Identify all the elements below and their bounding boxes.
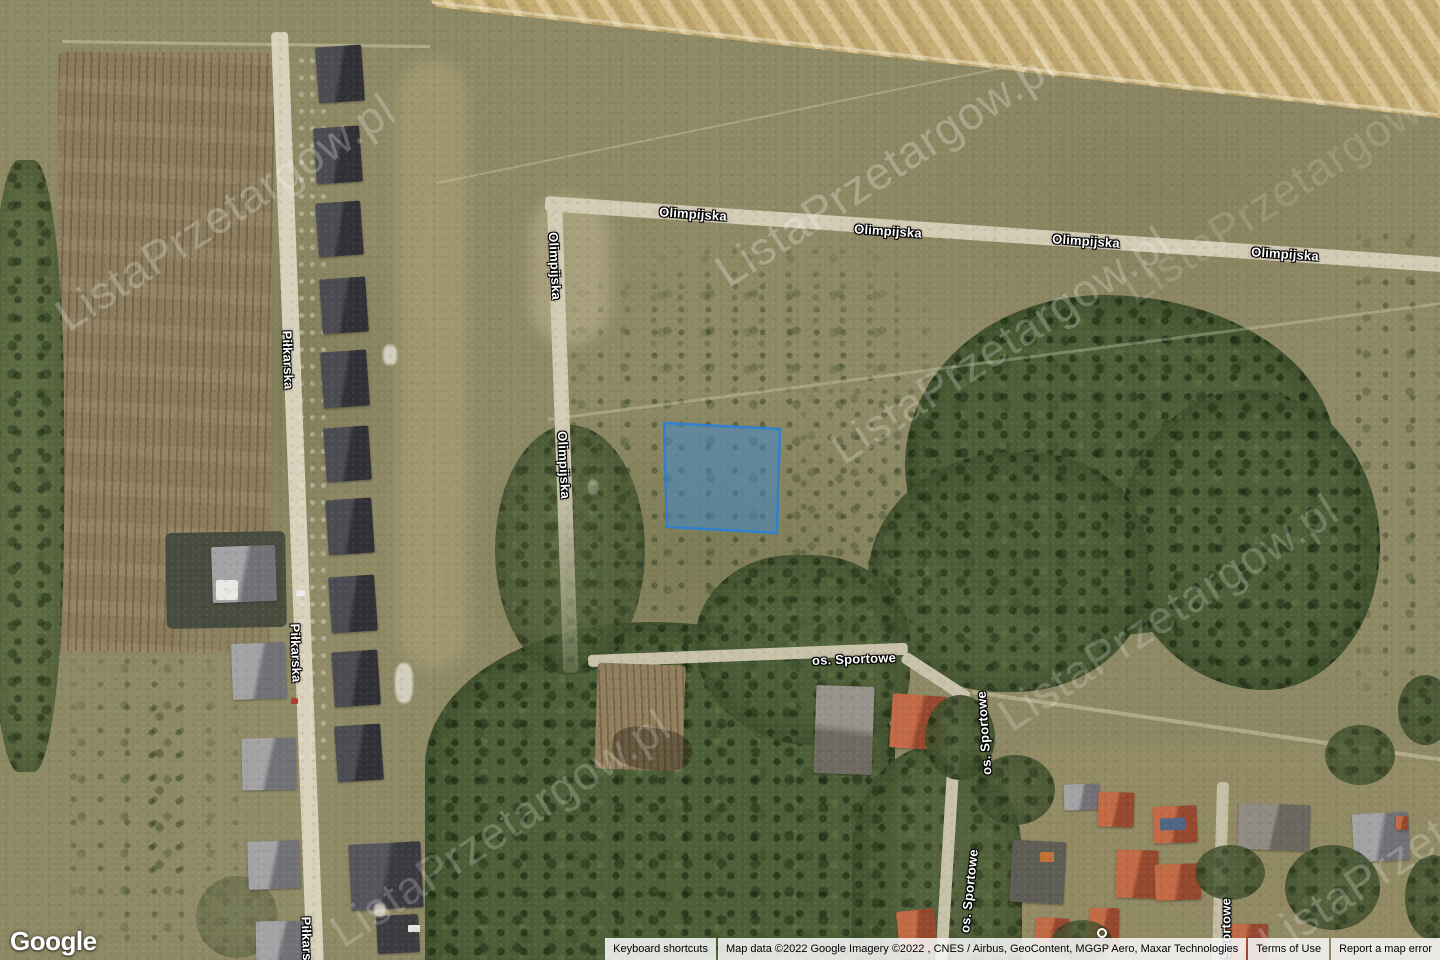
house-roof bbox=[1396, 816, 1408, 830]
field-track bbox=[62, 40, 430, 48]
house-under-construction bbox=[348, 841, 423, 911]
house-roof bbox=[231, 642, 287, 700]
house-roof bbox=[247, 840, 301, 890]
sand-band bbox=[398, 60, 468, 670]
roof-detail-orange bbox=[1040, 852, 1054, 862]
car bbox=[296, 590, 305, 596]
watermark: ListaPrzetargow.pl bbox=[705, 38, 1065, 298]
house-roof bbox=[242, 738, 297, 791]
house-roof bbox=[320, 349, 370, 408]
debris-pile bbox=[588, 480, 598, 494]
house-roof bbox=[1097, 791, 1134, 827]
house-roof bbox=[1115, 849, 1159, 898]
house-roof bbox=[313, 125, 363, 184]
car bbox=[408, 925, 420, 932]
house-roof bbox=[334, 723, 384, 782]
house-roof bbox=[319, 276, 369, 334]
shed-roof bbox=[376, 914, 420, 954]
attribution-bar: Keyboard shortcuts Map data ©2022 Google… bbox=[603, 938, 1440, 960]
green-strip-left bbox=[0, 160, 64, 772]
tree-cluster bbox=[1195, 845, 1265, 900]
road-olimpijska-horizontal bbox=[544, 196, 1440, 272]
garage-white bbox=[216, 580, 238, 600]
google-logo[interactable]: Google bbox=[10, 926, 97, 957]
keyboard-shortcuts-button[interactable]: Keyboard shortcuts bbox=[605, 938, 716, 960]
solar-panels bbox=[1160, 818, 1186, 831]
field-track bbox=[437, 62, 1025, 184]
tree-cluster bbox=[1325, 725, 1395, 785]
poi-marker[interactable] bbox=[1097, 928, 1107, 938]
car bbox=[291, 698, 298, 704]
map-data-attribution: Map data ©2022 Google Imagery ©2022 , CN… bbox=[718, 938, 1246, 960]
house-roof bbox=[331, 649, 381, 707]
terms-of-use-link[interactable]: Terms of Use bbox=[1248, 938, 1329, 960]
house-roof bbox=[1237, 803, 1311, 851]
sand-patch bbox=[530, 195, 610, 345]
house-roof bbox=[256, 921, 309, 960]
scattered-trees bbox=[640, 240, 900, 400]
tree-cluster bbox=[1398, 675, 1440, 745]
house-roof bbox=[325, 497, 375, 555]
forest-patch bbox=[1120, 390, 1380, 690]
tree-cluster bbox=[1285, 845, 1380, 930]
debris-pile bbox=[383, 345, 397, 365]
debris-pile bbox=[395, 663, 413, 703]
parcel-highlight[interactable] bbox=[664, 423, 780, 533]
debris-pile bbox=[374, 903, 386, 917]
house-roof bbox=[1064, 783, 1101, 810]
house-roof bbox=[315, 200, 364, 257]
house-roof bbox=[813, 685, 874, 775]
map-canvas[interactable]: ListaPrzetargow.pl ListaPrzetargow.pl Li… bbox=[0, 0, 1440, 960]
house-roof bbox=[323, 425, 372, 482]
house-roof bbox=[1009, 840, 1066, 905]
house-roof bbox=[328, 574, 378, 633]
report-map-error-link[interactable]: Report a map error bbox=[1331, 938, 1440, 960]
house-roof bbox=[315, 44, 365, 103]
tree-cluster bbox=[975, 755, 1055, 825]
